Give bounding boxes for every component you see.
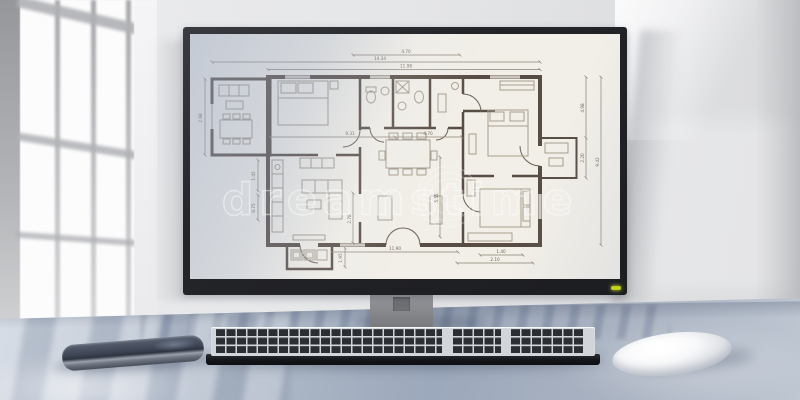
window-mullion: [126, 0, 131, 322]
dimension-label: 9.31: [345, 131, 355, 136]
dimension-label: 14.34: [374, 56, 386, 61]
bedroom-topleft: [278, 81, 338, 125]
floor-plan: 4.70 14.34 11.98 2.98 1.45 0.75 9.31 4.7…: [190, 34, 620, 279]
window-mullion: [55, 0, 60, 322]
keyboard-numpad: [511, 329, 584, 354]
dimension-label: 9.42: [595, 157, 600, 167]
keyboard-nav-keys: [453, 329, 501, 354]
dimension-label: 1.95: [338, 253, 343, 263]
hallway-furniture: [438, 83, 459, 113]
power-led: [611, 286, 621, 290]
dimension-label: 4.98: [580, 103, 585, 113]
phone-sheen: [151, 337, 198, 353]
dimension-label: 4.70: [401, 49, 411, 54]
bathrooms: [366, 81, 424, 110]
monitor-shadow: [154, 40, 184, 300]
wall-left-strip: [0, 0, 22, 322]
keyboard-deck: [211, 327, 595, 356]
dimension-label: 11.90: [389, 246, 401, 251]
porch-units: [291, 250, 327, 260]
monitor-screen: 4.70 14.34 11.98 2.98 1.45 0.75 9.31 4.7…: [190, 34, 620, 279]
monitor: 4.70 14.34 11.98 2.98 1.45 0.75 9.31 4.7…: [183, 27, 627, 295]
dimension-label: 2.98: [198, 113, 203, 123]
keyboard-main-keys: [216, 329, 443, 354]
window: [20, 0, 137, 322]
dimension-label: 2.10: [490, 257, 500, 262]
cable-hole: [393, 297, 410, 311]
monitor-stand: [370, 293, 433, 328]
window-mullion: [91, 0, 96, 322]
watermark-text: dreamstime: [222, 175, 579, 226]
office-scene: 4.70 14.34 11.98 2.98 1.45 0.75 9.31 4.7…: [0, 0, 800, 400]
sitting-room: [219, 85, 252, 144]
dimension-label: 1.40: [496, 249, 506, 254]
bedroom-topright: [469, 81, 534, 156]
dimension-label: 2.20: [580, 153, 585, 163]
dimension-label: 11.98: [400, 64, 412, 69]
keyboard: [208, 325, 598, 365]
dimension-label: 4.70: [423, 131, 433, 136]
balcony: [545, 143, 568, 166]
plan-walls: [212, 77, 577, 269]
